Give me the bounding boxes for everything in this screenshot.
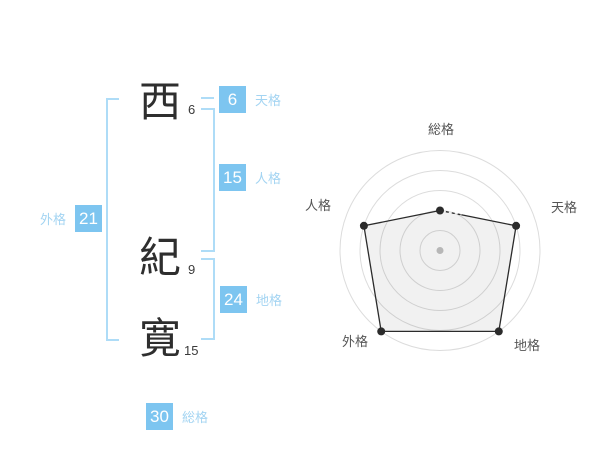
soukaku-label: 総格 xyxy=(182,407,208,426)
tenkaku-value-badge: 6 xyxy=(219,86,246,113)
tenkaku-label: 天格 xyxy=(255,90,281,109)
jinkaku-label: 人格 xyxy=(255,168,281,187)
radar-axis-label-2: 地格 xyxy=(514,338,540,353)
radar-data-point xyxy=(377,327,385,335)
radar-axis-label-4: 人格 xyxy=(305,198,331,213)
radar-axis-label-3: 外格 xyxy=(342,334,368,349)
jinkaku-bracket xyxy=(201,108,215,252)
name-analysis-screen: 西 6 紀 9 寛 15 6 天格 15 人格 24 地格 外格 21 30 総… xyxy=(0,0,600,470)
jinkaku-value-badge: 15 xyxy=(219,164,246,191)
jinkaku-row: 15 人格 xyxy=(219,164,281,191)
name-char-1-strokes: 6 xyxy=(188,102,195,117)
chikaku-value-badge: 24 xyxy=(220,286,247,313)
soukaku-row: 30 総格 xyxy=(146,403,208,430)
radar-data-point xyxy=(360,222,368,230)
tenkaku-tick xyxy=(201,97,214,99)
name-char-1: 西 xyxy=(137,81,183,123)
name-char-2: 紀 xyxy=(137,237,183,279)
radar-axis-label-1: 天格 xyxy=(551,200,577,215)
radar-chart: 総格天格地格外格人格 xyxy=(300,110,590,362)
radar-series-fill xyxy=(364,211,516,332)
chikaku-bracket xyxy=(201,258,215,340)
soukaku-value-badge: 30 xyxy=(146,403,173,430)
radar-data-point xyxy=(436,207,444,215)
radar-data-point xyxy=(495,327,503,335)
name-char-3: 寛 xyxy=(137,318,183,360)
gaikaku-label: 外格 xyxy=(40,209,66,228)
chikaku-row: 24 地格 xyxy=(220,286,282,313)
radar-data-point xyxy=(512,222,520,230)
name-char-3-strokes: 15 xyxy=(184,343,198,358)
gaikaku-value-badge: 21 xyxy=(75,205,102,232)
gaikaku-bracket xyxy=(106,98,119,341)
tenkaku-row: 6 天格 xyxy=(219,86,281,113)
name-char-2-strokes: 9 xyxy=(188,262,195,277)
gaikaku-row: 外格 21 xyxy=(40,205,102,232)
radar-axis-label-0: 総格 xyxy=(428,122,454,137)
chikaku-label: 地格 xyxy=(256,290,282,309)
